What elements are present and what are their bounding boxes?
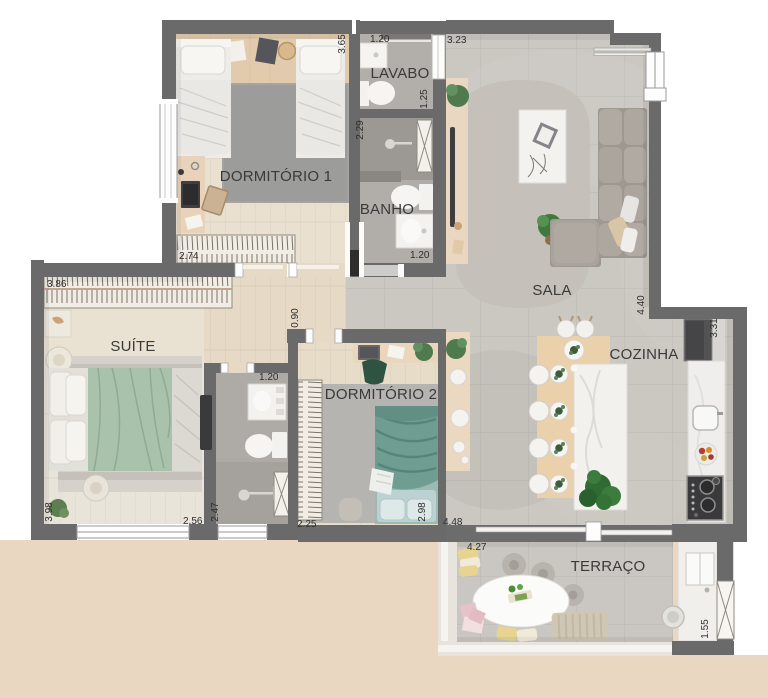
- svg-text:COZINHA: COZINHA: [610, 346, 679, 363]
- svg-text:3.65: 3.65: [337, 34, 348, 54]
- svg-text:DORMITÓRIO 2: DORMITÓRIO 2: [325, 386, 437, 403]
- svg-text:1.25: 1.25: [419, 89, 430, 109]
- svg-text:4.27: 4.27: [467, 542, 487, 553]
- svg-text:1.20: 1.20: [410, 250, 430, 261]
- svg-text:2.25: 2.25: [297, 519, 317, 530]
- svg-text:SUÍTE: SUÍTE: [110, 338, 155, 355]
- svg-text:TERRAÇO: TERRAÇO: [571, 558, 646, 575]
- svg-text:3.23: 3.23: [447, 35, 467, 46]
- svg-text:0.90: 0.90: [290, 308, 301, 328]
- svg-text:2.74: 2.74: [179, 251, 199, 262]
- svg-text:2.98: 2.98: [417, 502, 428, 522]
- svg-text:LAVABO: LAVABO: [370, 65, 429, 82]
- svg-text:3.31: 3.31: [709, 318, 720, 338]
- svg-text:SALA: SALA: [532, 282, 571, 299]
- svg-text:3.86: 3.86: [47, 279, 67, 290]
- svg-text:1.55: 1.55: [700, 619, 711, 639]
- svg-text:3.98: 3.98: [44, 502, 55, 522]
- svg-text:2.29: 2.29: [355, 120, 366, 140]
- svg-text:4.48: 4.48: [443, 517, 463, 528]
- svg-text:1.20: 1.20: [259, 372, 279, 383]
- svg-text:DORMITÓRIO 1: DORMITÓRIO 1: [220, 168, 332, 185]
- svg-text:1.20: 1.20: [370, 34, 390, 45]
- svg-text:4.40: 4.40: [636, 295, 647, 315]
- svg-text:BANHO: BANHO: [360, 201, 414, 218]
- svg-text:2.47: 2.47: [210, 502, 221, 522]
- svg-text:2.56: 2.56: [183, 516, 203, 527]
